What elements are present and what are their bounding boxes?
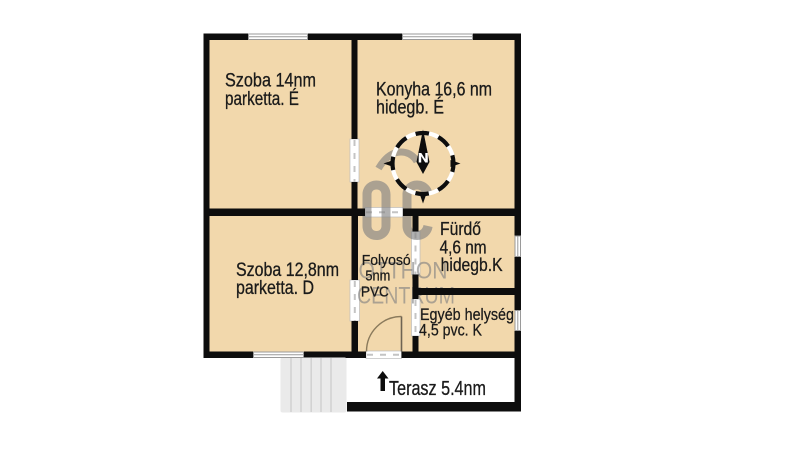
svg-text:5nm: 5nm [365,267,390,284]
svg-text:parketta. É: parketta. É [225,89,299,110]
svg-text:Terasz 5.4nm: Terasz 5.4nm [389,378,486,400]
svg-text:hidegb. É: hidegb. É [376,98,444,119]
svg-text:PVC: PVC [361,283,389,300]
svg-text:parketta. D: parketta. D [236,278,314,299]
svg-text:hidegb.K: hidegb.K [441,254,504,275]
svg-text:4,5 pvc. K: 4,5 pvc. K [419,322,482,340]
